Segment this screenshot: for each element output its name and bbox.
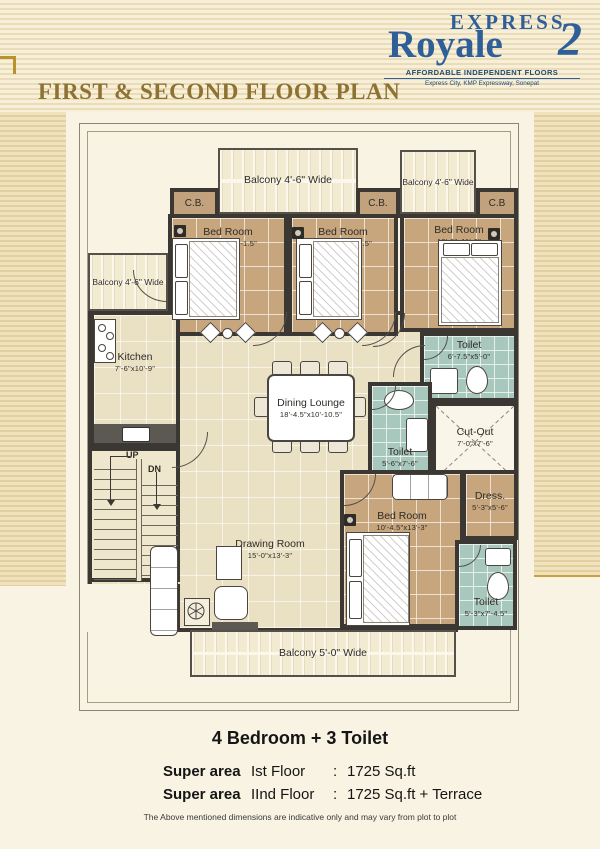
area-value: 1725 Sq.ft	[347, 763, 482, 780]
up-arrow-line	[110, 456, 111, 500]
cutout-label: Cut-Out 7'-0"x7'-6"	[436, 426, 514, 449]
wc-icon	[466, 366, 488, 394]
super-area-label: Super area	[163, 786, 251, 803]
cutout-name: Cut-Out	[436, 426, 514, 439]
stair-divider	[136, 459, 142, 581]
pillow	[349, 581, 362, 619]
disclaimer-text: The Above mentioned dimensions are indic…	[0, 812, 600, 822]
pillow	[299, 244, 312, 278]
burner-icon	[98, 344, 106, 352]
lamp-icon	[334, 328, 345, 339]
stair-flight-up	[94, 469, 136, 581]
balcony-bottom: Balcony 5'-0" Wide	[190, 630, 456, 677]
stairs-down-label: DN	[148, 464, 161, 474]
pillow	[299, 281, 312, 315]
sofa-icon	[392, 474, 448, 500]
down-arrow-head	[153, 504, 161, 510]
toilet-mid-label: Toilet 5'-6"x7'-6"	[372, 446, 428, 469]
pillow	[175, 281, 188, 315]
cupboard-2-label: C.B.	[368, 198, 387, 209]
cutout-dims: 7'-0"x7'-6"	[436, 439, 514, 449]
dress-dims: 5'-3"x5'-6"	[466, 503, 514, 513]
balcony-top-right-label: Balcony 4'-6" Wide	[402, 177, 473, 188]
burner-icon	[106, 332, 114, 340]
down-arrow-line	[156, 472, 157, 504]
gold-corner-ornament	[0, 56, 16, 74]
dining-dims: 18'-4.5"x10'-10.5"	[280, 410, 342, 420]
super-area-row-2: Super area IInd Floor : 1725 Sq.ft + Ter…	[163, 786, 482, 803]
bed-icon	[438, 240, 502, 326]
striped-wall-right	[534, 112, 600, 577]
dress-name: Dress.	[466, 490, 514, 503]
washbasin-icon	[485, 548, 511, 566]
super-area-table: Super area Ist Floor : 1725 Sq.ft Super …	[163, 763, 482, 809]
cupboard-1-label: C.B.	[185, 198, 204, 209]
floor-label: IInd Floor	[251, 786, 333, 803]
side-table-icon	[200, 322, 221, 343]
page-title: FIRST & SECOND FLOOR PLAN	[38, 79, 400, 105]
bed-icon	[296, 238, 362, 320]
toilet-bottom-label: Toilet 5'-3"x7'-4.5"	[459, 596, 513, 619]
brand-logo: EXPRESS Royale 2 AFFORDABLE INDEPENDENT …	[372, 2, 594, 92]
super-area-label: Super area	[163, 763, 251, 780]
burner-icon	[98, 324, 106, 332]
brand-name-2: 2	[558, 12, 582, 67]
super-area-row-1: Super area Ist Floor : 1725 Sq.ft	[163, 763, 482, 780]
balcony-bottom-label: Balcony 5'-0" Wide	[279, 647, 367, 660]
bed-icon	[172, 238, 240, 320]
corner-box-icon	[292, 227, 304, 239]
dress-room: Dress. 5'-3"x5'-6"	[462, 470, 518, 540]
bedroom-4-name: Bed Room	[344, 510, 460, 523]
sink-icon	[122, 427, 150, 442]
stove-icon	[94, 319, 116, 363]
kitchen-counter	[94, 424, 176, 443]
striped-wall-left	[0, 112, 66, 586]
stairs-up-label: UP	[126, 450, 139, 460]
pillow	[175, 244, 188, 278]
coffee-table-icon	[216, 546, 242, 580]
separator: :	[333, 763, 347, 780]
armchair-icon	[214, 586, 248, 620]
pillow	[443, 243, 470, 256]
cupboard-3-label: C.B	[489, 198, 506, 209]
kitchen-dims: 7'-6"x10'-9"	[94, 364, 176, 374]
blanket	[189, 241, 237, 317]
brochure-page: EXPRESS Royale 2 AFFORDABLE INDEPENDENT …	[0, 0, 600, 849]
bed-icon	[346, 532, 410, 626]
corner-box-icon	[174, 225, 186, 237]
bedroom-4-label: Bed Room 10'-4.5"x13'-3"	[344, 510, 460, 533]
side-table-set	[312, 318, 366, 346]
area-value: 1725 Sq.ft + Terrace	[347, 786, 482, 803]
balcony-top-center: Balcony 4'-6" Wide	[218, 148, 358, 214]
plan-headline: 4 Bedroom + 3 Toilet	[0, 728, 600, 749]
up-arrow-head	[107, 500, 115, 506]
fan-glyph	[185, 599, 207, 623]
lamp-icon	[222, 328, 233, 339]
dining-table: Dining Lounge 18'-4.5"x10'-10.5"	[267, 374, 355, 442]
burner-icon	[106, 352, 114, 360]
side-table-set	[200, 318, 254, 346]
pillow	[349, 539, 362, 577]
tv-console	[212, 622, 258, 630]
toilet-bottom-dims: 5'-3"x7'-4.5"	[459, 609, 513, 619]
toilet-mid-name: Toilet	[372, 446, 428, 459]
sofa-icon	[150, 546, 178, 636]
side-table-icon	[312, 322, 333, 343]
brand-location: Express City, KMP Expressway, Sonepat	[384, 80, 580, 87]
brand-name-royale: Royale	[388, 22, 503, 67]
corner-box-icon	[344, 514, 356, 526]
balcony-top-center-label: Balcony 4'-6" Wide	[244, 174, 332, 187]
dress-label: Dress. 5'-3"x5'-6"	[466, 490, 514, 513]
fan-icon	[184, 598, 210, 626]
corner-box-icon	[488, 228, 500, 240]
separator: :	[333, 786, 347, 803]
brand-tagline: AFFORDABLE INDEPENDENT FLOORS	[384, 68, 580, 79]
blanket	[363, 535, 409, 623]
dining-name: Dining Lounge	[277, 397, 345, 410]
blanket	[313, 241, 359, 317]
toilet-bottom-name: Toilet	[459, 596, 513, 609]
pillow	[471, 243, 498, 256]
toilet-mid-dims: 5'-6"x7'-6"	[372, 459, 428, 469]
up-arrow-line	[110, 456, 130, 457]
blanket	[441, 257, 499, 323]
washbasin-icon	[430, 368, 458, 394]
floor-label: Ist Floor	[251, 763, 333, 780]
balcony-top-right: Balcony 4'-6" Wide	[400, 150, 476, 214]
